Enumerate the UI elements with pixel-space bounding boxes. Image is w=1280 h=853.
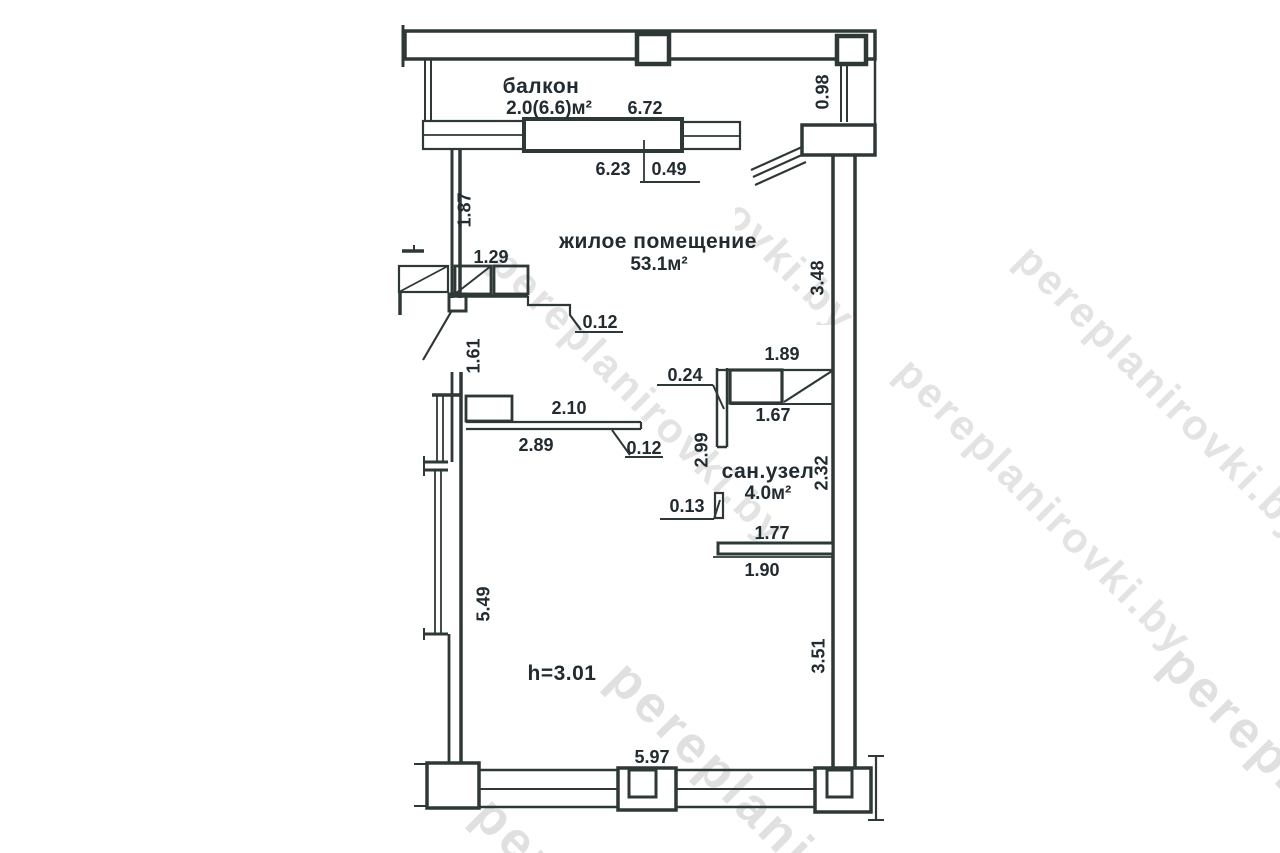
bathroom-name: сан.узел (722, 460, 815, 483)
dimension-leader (713, 385, 724, 409)
dim-wall-right-top: 3.48 (807, 260, 827, 295)
dim-balcony-window: 6.23 (595, 159, 630, 179)
bathroom-door-swing (784, 371, 832, 402)
balcony-window (524, 119, 682, 151)
floor-plan-svg: pereplanirovki.by pereplanirovki.by pere… (0, 0, 1280, 853)
pillar (837, 36, 866, 64)
dim-niche-width: 1.29 (473, 247, 508, 267)
top-window-wall (423, 119, 740, 182)
dim-partition-bottom: 2.89 (518, 435, 553, 455)
shaft-diagonal (399, 266, 448, 292)
pillar (618, 768, 676, 810)
watermark-text: pereplanirovki.by (1150, 634, 1280, 853)
partition-box (466, 396, 512, 421)
living-room-name: жилое помещение (558, 230, 757, 253)
left-wall (399, 149, 466, 764)
dim-bathroom-partition: 0.24 (667, 365, 702, 385)
dim-bathroom-door: 1.67 (755, 405, 790, 425)
bathroom-area: 4.0м² (745, 483, 792, 504)
dim-balcony-width: 6.72 (627, 98, 662, 118)
dim-balcony-window-pier: 0.49 (651, 159, 686, 179)
dim-bathroom-top: 1.89 (764, 344, 799, 364)
dim-bathroom-height-right: 2.32 (811, 455, 831, 490)
pillar (427, 763, 479, 808)
dim-bathroom-bottom-outer: 1.90 (744, 560, 779, 580)
dim-partition-thickness: 0.12 (626, 438, 661, 458)
pillar (637, 34, 669, 64)
dim-entry-opening: 1.61 (463, 338, 483, 373)
entry-door-swing (423, 312, 451, 360)
dim-wall-left-top: 1.87 (454, 192, 474, 227)
dim-bathroom-stub: 0.13 (669, 496, 704, 516)
dim-bottom-width: 5.97 (634, 747, 669, 767)
balcony-area: 2.0(6.6)м² (506, 98, 592, 119)
balcony-name: балкон (503, 75, 580, 98)
dim-niche-depth: 0.12 (582, 312, 617, 332)
dim-balcony-depth: 0.98 (812, 74, 832, 109)
pillar (815, 768, 871, 812)
dim-bathroom-bottom-inner: 1.77 (754, 523, 789, 543)
living-room-area: 53.1м² (630, 254, 687, 275)
bathroom-door-leaf (730, 370, 782, 403)
dim-wall-right-bottom: 3.51 (808, 638, 828, 673)
floor-plan-scan: pereplanirovki.by pereplanirovki.by pere… (0, 0, 1280, 853)
dim-wall-left-bottom: 5.49 (473, 586, 493, 621)
dim-partition-top: 2.10 (551, 398, 586, 418)
dim-bathroom-height-upper: 2.99 (691, 432, 711, 467)
wall-block (802, 125, 875, 155)
ceiling-height: h=3.01 (528, 662, 597, 685)
bathroom-bottom-wall (718, 543, 833, 554)
